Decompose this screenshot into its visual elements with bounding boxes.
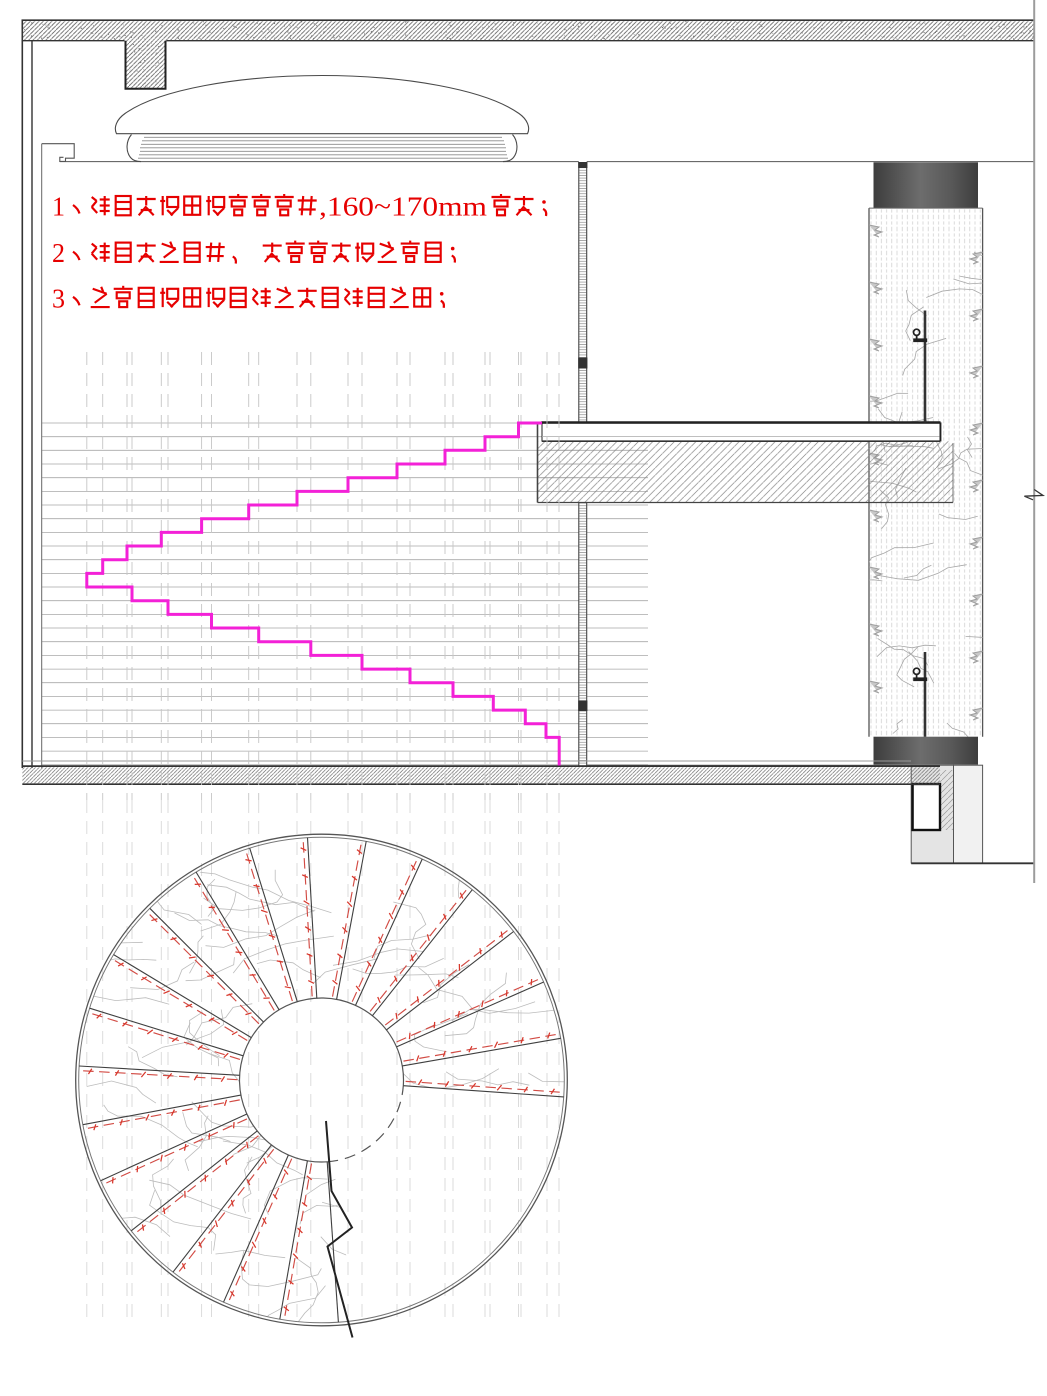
svg-text:3: 3 [52, 283, 65, 313]
svg-text:1: 1 [52, 192, 65, 222]
svg-text:2: 2 [52, 238, 65, 268]
svg-text:,160~170mm: ,160~170mm [319, 192, 487, 222]
